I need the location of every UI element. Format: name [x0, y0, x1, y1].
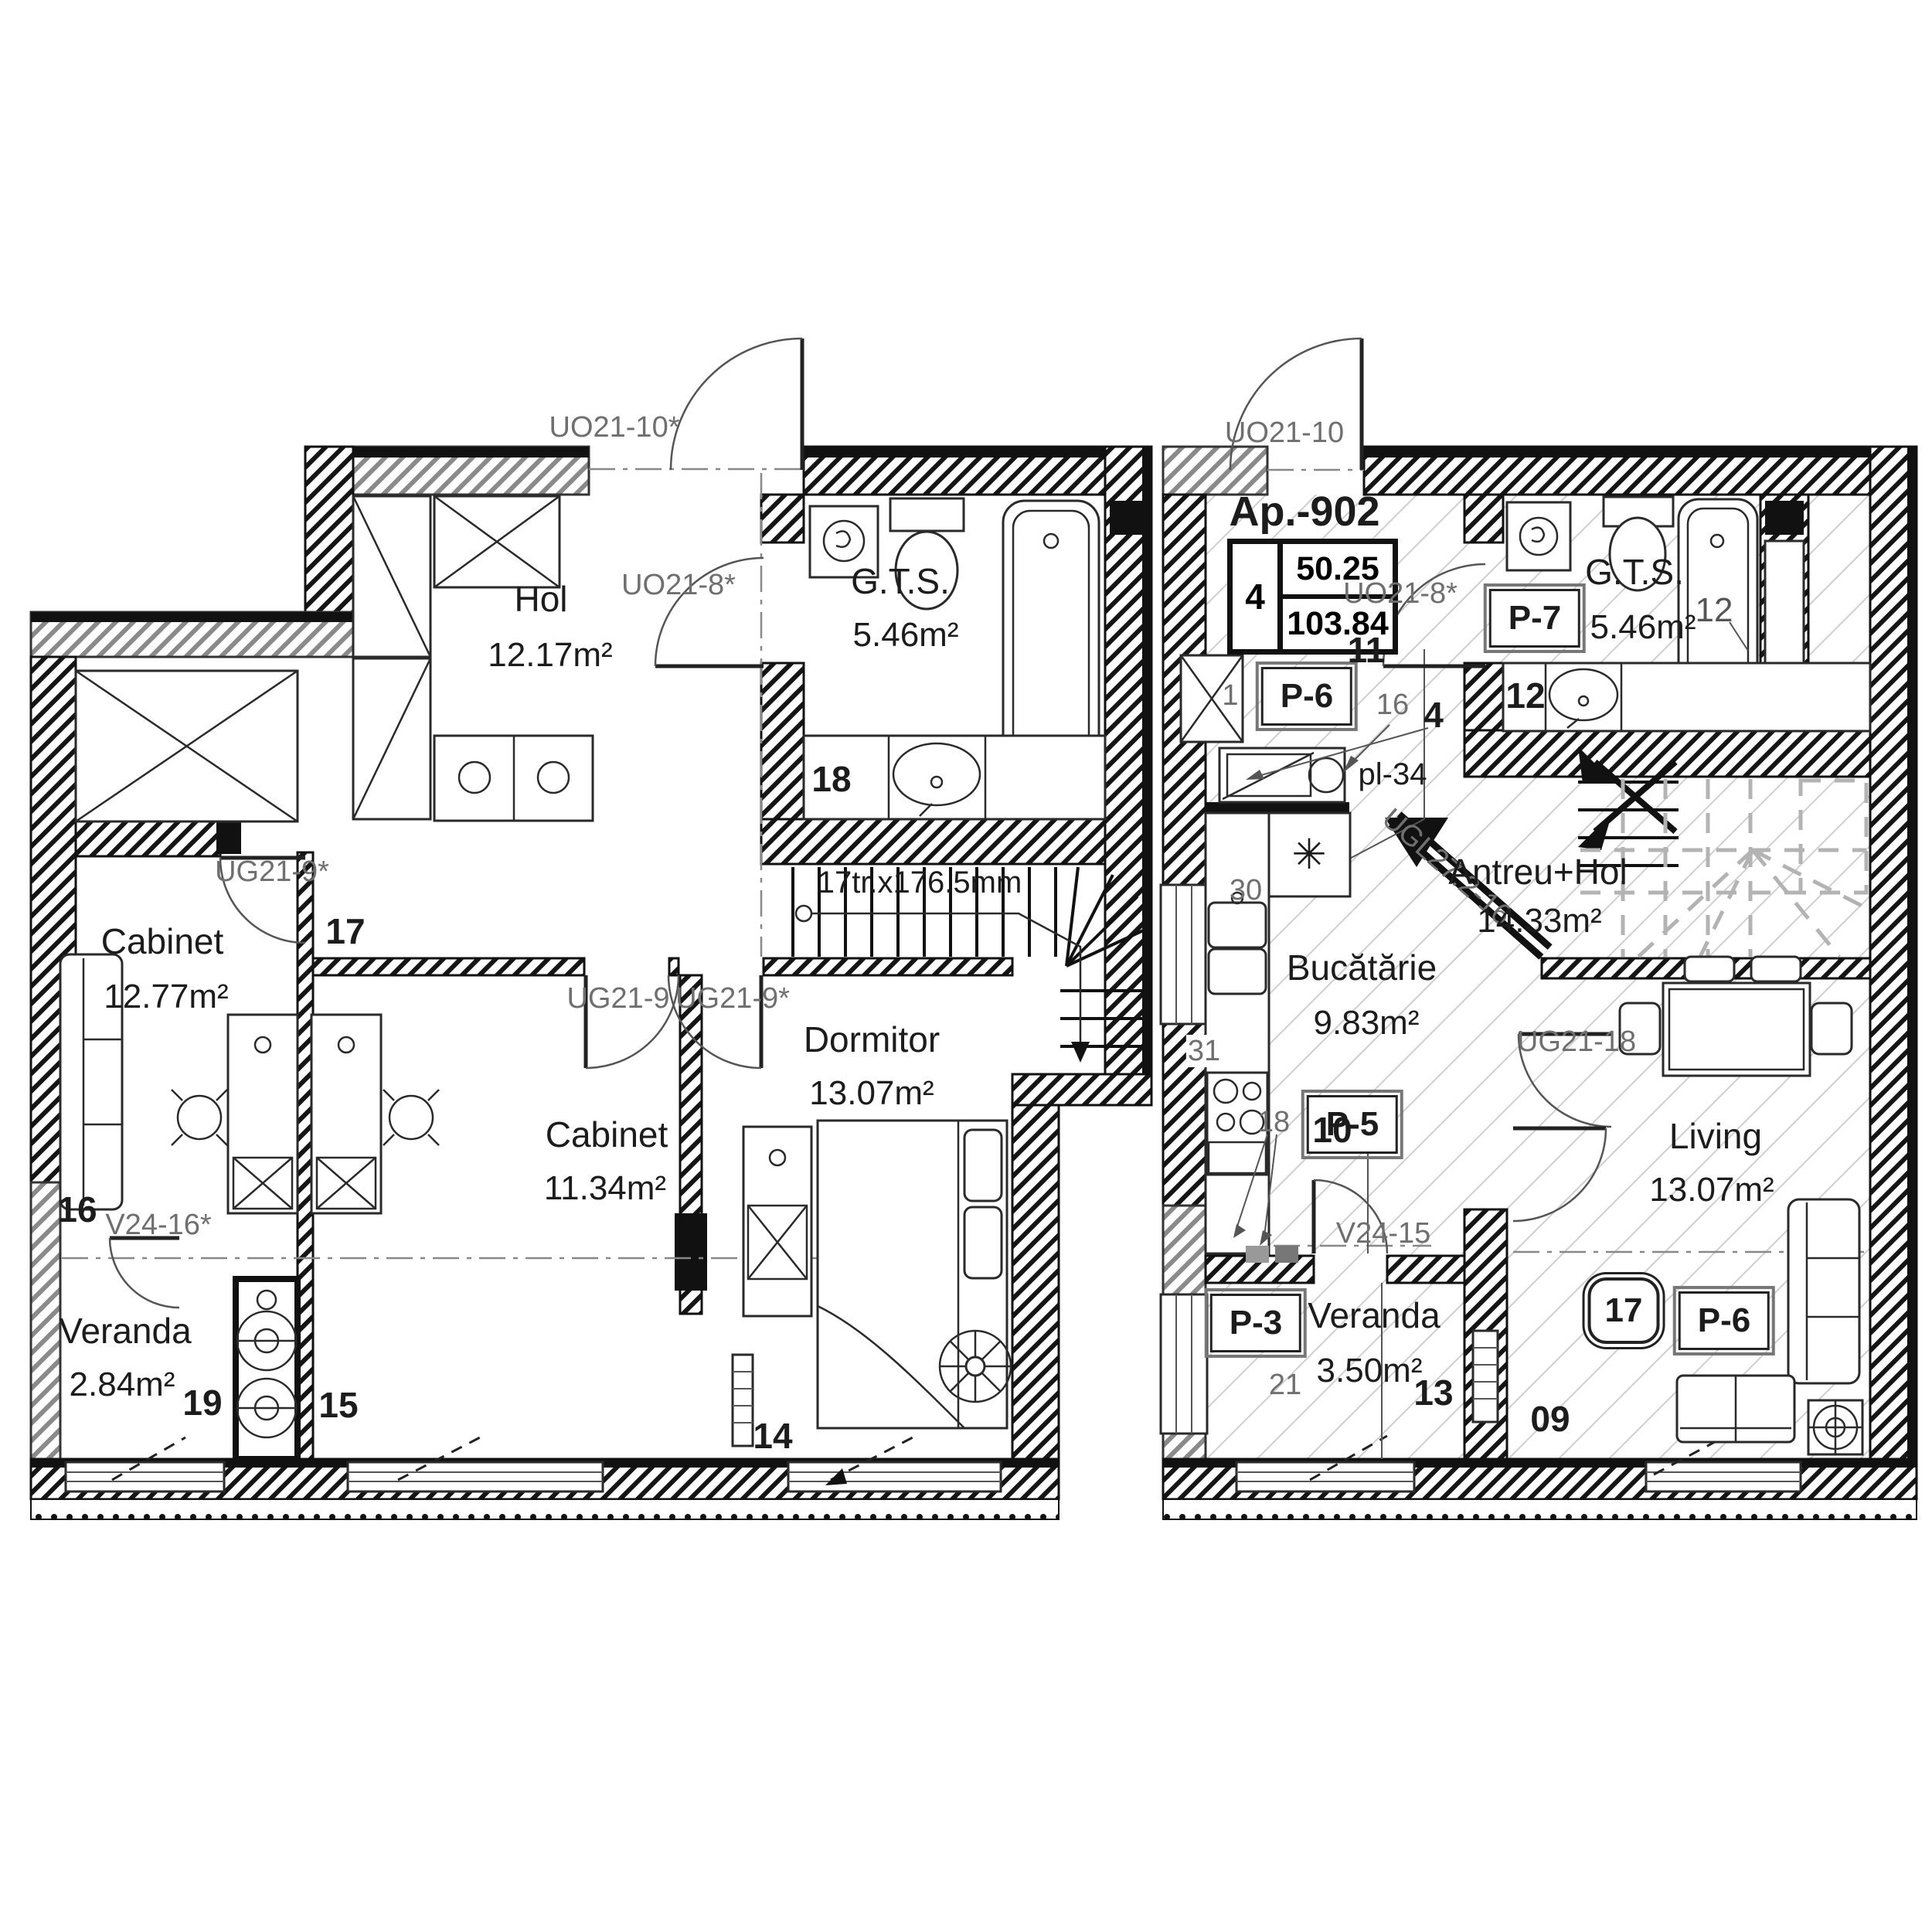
room-area-dormitor: 13.07m²	[809, 1077, 934, 1111]
apartment-room-count: 4	[1233, 544, 1283, 649]
kitchen-hood-symbol: ✳	[1291, 834, 1326, 876]
room-area-antreu: 14.33m²	[1477, 904, 1601, 938]
window-veranda-bottom	[1236, 1462, 1414, 1492]
room-area-veranda: 3.50m²	[1317, 1354, 1423, 1388]
entry-door-arc	[671, 338, 802, 470]
room-name-veranda: Veranda	[59, 1313, 191, 1349]
room-number-gts: 12	[1505, 678, 1545, 713]
loveseat-icon	[1677, 1376, 1794, 1442]
room-name-antreu: Antreu+Hol	[1448, 854, 1627, 889]
ref-number-4: 4	[1423, 697, 1444, 733]
ref-number-30: 30	[1230, 876, 1262, 905]
ref-number-tub: 12	[1696, 594, 1733, 628]
finish-tag-hol: P-6	[1261, 667, 1352, 726]
room-number-cabinet1: 16	[57, 1192, 97, 1227]
window-veranda	[1161, 1294, 1207, 1434]
desk-icon	[311, 1015, 381, 1213]
room-name-bucatarie: Bucătărie	[1287, 950, 1437, 985]
room-area-bucatarie: 9.83m²	[1314, 1006, 1420, 1040]
closet-x-large-icon	[76, 671, 298, 821]
apartment-id: Ap.-902	[1229, 491, 1379, 532]
veranda-door-code: V24-15	[1336, 1219, 1431, 1248]
room-number-living: 09	[1530, 1401, 1570, 1437]
room-area-hol: 12.17m²	[488, 638, 612, 672]
window-living-bottom	[1646, 1462, 1801, 1492]
dresser-icon	[743, 1127, 811, 1316]
room-name-veranda: Veranda	[1308, 1298, 1440, 1333]
room-name-living: Living	[1669, 1118, 1762, 1154]
left-plan-windows	[66, 1436, 1001, 1492]
sink-counter-icon	[1503, 663, 1870, 731]
entry-door-code: UO21-10*	[549, 413, 680, 442]
stairs-label: 17tr.x176.5mm	[818, 867, 1022, 898]
room-number-bucatarie: 10	[1312, 1112, 1352, 1148]
desk-icon	[228, 1015, 298, 1213]
boiler-closet-icon	[236, 1279, 298, 1459]
room-area-living: 13.07m²	[1649, 1173, 1774, 1207]
cabinet-units-icon	[434, 736, 593, 821]
room-number-antreu: 11	[1348, 632, 1386, 668]
entry-door-code: UO21-10	[1225, 418, 1344, 447]
room-name-cabinet1: Cabinet	[101, 923, 224, 959]
plant-icon	[940, 1331, 1011, 1402]
window-veranda-left	[66, 1462, 224, 1492]
ref-number-18: 18	[1257, 1107, 1290, 1137]
floor-plan-sheet: UO21-10* Hol 12.17m² UO21-8* G.T.S. 5.46…	[0, 0, 1932, 1932]
wardrobe-icon	[353, 496, 430, 819]
window-cabinet2	[348, 1462, 603, 1492]
room-name-hol: Hol	[514, 581, 567, 617]
room-number-veranda: 19	[182, 1385, 222, 1420]
window-dormitor	[788, 1462, 1001, 1492]
sofa-icon	[1788, 1199, 1859, 1383]
room-number-gts: 18	[811, 761, 851, 797]
closet-x-icon	[434, 496, 560, 587]
gts-door-code: UO21-8*	[1343, 579, 1458, 608]
veranda-door-code: V24-16*	[105, 1210, 211, 1240]
plan-drawing	[0, 0, 1932, 1932]
chair-icon	[172, 1090, 227, 1145]
washing-machine-icon	[1507, 502, 1570, 570]
room-number-hol: 17	[325, 913, 365, 949]
room-name-dormitor: Dormitor	[804, 1022, 940, 1057]
gts-door-code: UO21-8*	[621, 570, 736, 600]
ref-number-21: 21	[1269, 1370, 1301, 1400]
finish-tag-gts: P-7	[1489, 589, 1580, 648]
room-name-gts: G.T.S.	[851, 563, 950, 599]
radiator-icon	[1473, 1331, 1498, 1422]
ref-number-closet: 1	[1222, 681, 1238, 710]
living-door-code: UG21-18	[1517, 1027, 1636, 1056]
living-badge-17: 17	[1588, 1277, 1660, 1344]
room-name-gts: G.T.S.	[1585, 554, 1684, 590]
room-number-dormitor: 14	[753, 1418, 792, 1454]
radiator-icon	[733, 1355, 753, 1446]
bed-icon	[818, 1121, 1007, 1428]
room-area-cabinet1: 12.77m²	[104, 980, 228, 1014]
room-number-cabinet2: 15	[318, 1387, 358, 1423]
cabinet2-door-code: UG21-9	[566, 984, 669, 1013]
finish-tag-veranda: P-3	[1210, 1294, 1301, 1352]
landing-code: pl-34	[1359, 759, 1427, 790]
chair-icon	[383, 1090, 439, 1145]
room-area-gts: 5.46m²	[853, 618, 959, 652]
room-area-cabinet2: 11.34m²	[544, 1172, 666, 1206]
window-kitchen	[1161, 885, 1207, 1024]
finish-tag-living: P-6	[1679, 1291, 1770, 1350]
veranda-door-arc	[110, 1238, 179, 1308]
ref-number-16: 16	[1376, 690, 1409, 719]
dormitor-door-code: UG21-9*	[675, 984, 790, 1013]
room-area-veranda: 2.84m²	[70, 1368, 175, 1402]
room-name-cabinet2: Cabinet	[546, 1117, 668, 1152]
plant-icon	[1808, 1400, 1862, 1454]
room-area-gts: 5.46m²	[1590, 611, 1696, 645]
room-number-veranda: 13	[1413, 1375, 1453, 1410]
ref-number-31: 31	[1186, 1035, 1222, 1067]
cabinet1-door-code: UG21-9*	[215, 857, 329, 886]
